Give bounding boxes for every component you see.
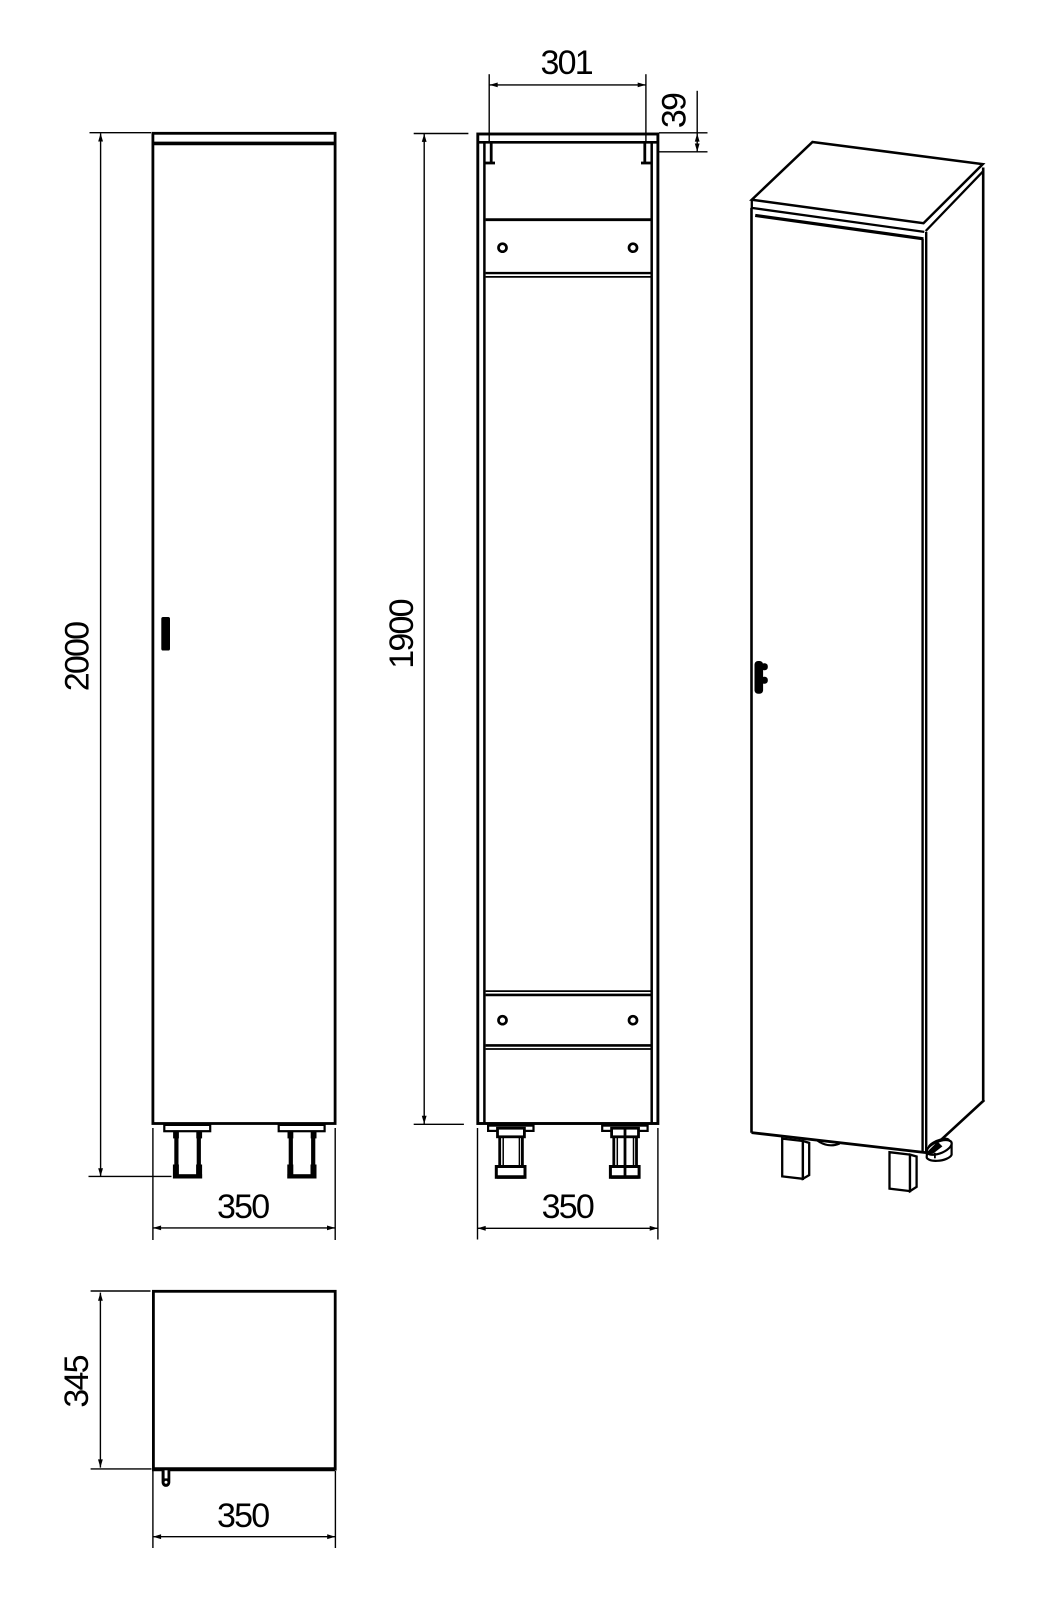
svg-text:350: 350 (217, 1188, 269, 1226)
svg-text:350: 350 (542, 1188, 594, 1226)
svg-text:345: 345 (58, 1355, 96, 1407)
svg-text:1900: 1900 (383, 599, 421, 668)
svg-text:350: 350 (217, 1497, 269, 1535)
svg-text:301: 301 (541, 44, 593, 82)
svg-text:39: 39 (655, 93, 693, 128)
svg-text:2000: 2000 (58, 622, 96, 691)
